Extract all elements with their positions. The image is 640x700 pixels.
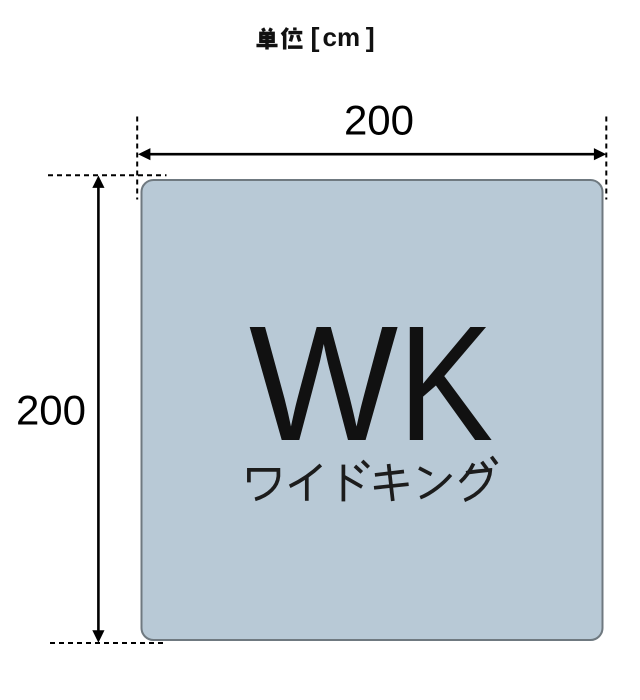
- svg-text:K: K: [398, 292, 493, 476]
- svg-text:W: W: [249, 292, 398, 475]
- svg-text:200: 200: [16, 387, 86, 434]
- svg-text:200: 200: [344, 96, 414, 143]
- svg-text:cm: cm: [323, 22, 361, 52]
- svg-text:]: ]: [366, 23, 375, 53]
- svg-text:[: [: [311, 23, 320, 53]
